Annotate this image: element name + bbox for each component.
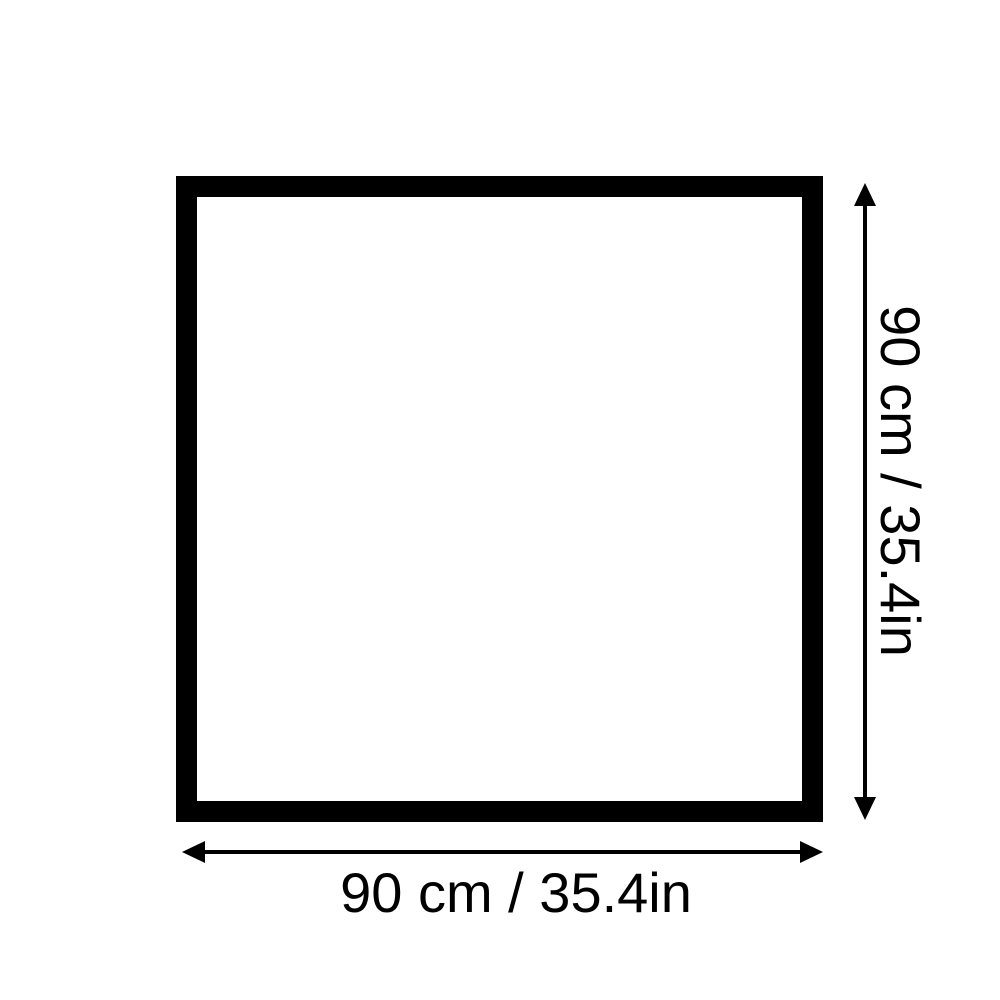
width-dimension-arrow — [182, 841, 823, 863]
dimension-diagram: 90 cm / 35.4in 90 cm / 35.4in — [0, 0, 1000, 1000]
width-dimension-label: 90 cm / 35.4in — [340, 861, 692, 925]
arrowhead-up-icon — [854, 183, 876, 206]
arrowhead-down-icon — [854, 797, 876, 820]
dimension-arrows — [0, 0, 1000, 1000]
arrowhead-right-icon — [800, 841, 823, 863]
height-dimension-label: 90 cm / 35.4in — [868, 305, 932, 657]
arrowhead-left-icon — [182, 841, 205, 863]
